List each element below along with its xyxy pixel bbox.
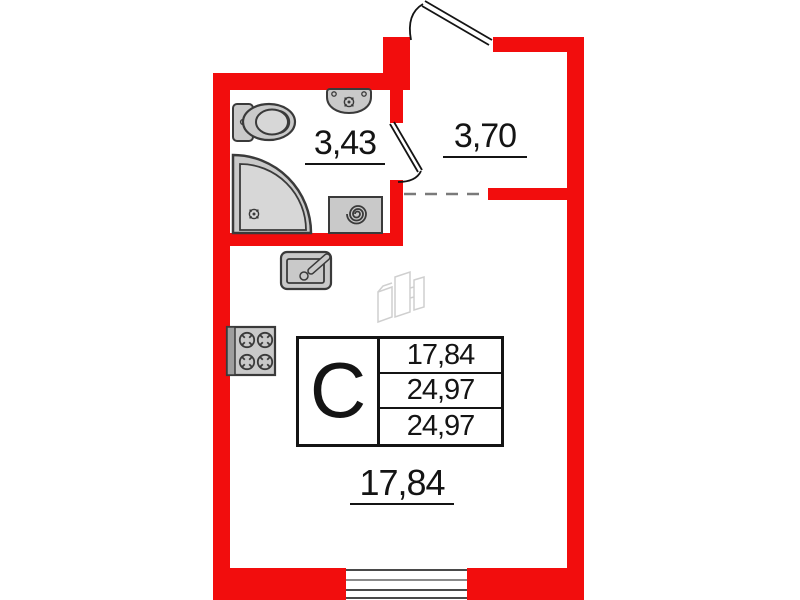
- floor-plan: { "plan_type": "apartment-floor-plan", "…: [0, 0, 800, 600]
- unit-type-cell: С: [299, 339, 380, 444]
- unit-area-row-2: 24,97: [380, 374, 501, 409]
- area-label-room: 17,84: [350, 464, 454, 505]
- area-label-hallway: 3,70: [443, 119, 527, 158]
- washing-machine-icon: [329, 197, 382, 233]
- plan-graphics: [0, 0, 800, 600]
- watermark-logo-icon: [378, 272, 424, 322]
- unit-info-table: С 17,84 24,97 24,97: [296, 336, 504, 447]
- entrance-door-icon: [410, 1, 492, 45]
- kitchen-sink-icon: [281, 252, 331, 289]
- unit-area-row-1: 17,84: [380, 339, 501, 374]
- corner-shower-icon: [233, 155, 311, 233]
- area-label-bathroom: 3,43: [305, 126, 385, 165]
- stove-icon: [227, 327, 275, 375]
- washbasin-icon: [327, 89, 371, 113]
- toilet-icon: [233, 104, 295, 141]
- unit-area-row-3: 24,97: [380, 409, 501, 444]
- bathroom-door-icon: [390, 122, 422, 182]
